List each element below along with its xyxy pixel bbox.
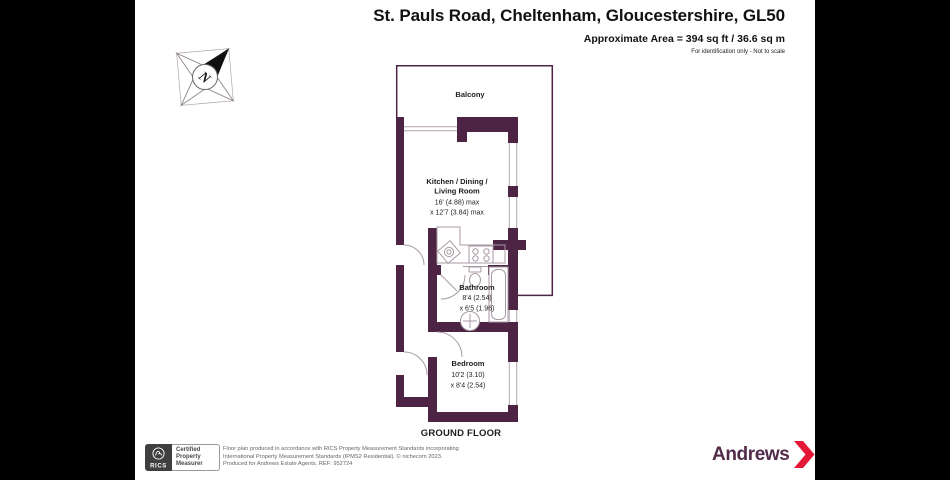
rics-cert-line3: Measurer [176, 461, 219, 468]
bathtub-icon [489, 267, 508, 322]
disclaimer-line1: Floor plan produced in accordance with R… [223, 446, 459, 454]
andrews-logo: Andrews [712, 441, 815, 468]
rics-cert-text: Certified Property Measurer [172, 444, 220, 471]
balcony-label: Balcony [455, 90, 485, 99]
kitchen-name-line1: Kitchen / Dining / [426, 177, 488, 186]
bathroom-door-leaf [441, 275, 457, 291]
identification-note: For identification only - Not to scale [373, 49, 785, 55]
bathroom-dim-line1: 8'4 (2.54) [462, 295, 491, 302]
bathroom-dim-line2: x 6'5 (1.96) [460, 306, 495, 313]
stove-icon [469, 246, 493, 263]
bedroom-door-arc [437, 332, 462, 357]
kitchen-sink-icon [438, 241, 461, 264]
bathroom-name: Bathroom [459, 283, 495, 292]
bath-sink-icon [461, 312, 480, 331]
rics-logo: RICS [145, 444, 172, 471]
kitchen-name-line2: Living Room [434, 187, 480, 196]
kitchen-dim-line2: x 12'7 (3.84) max [430, 210, 484, 217]
property-address: St. Pauls Road, Cheltenham, Gloucestersh… [373, 6, 785, 26]
disclaimer: Floor plan produced in accordance with R… [223, 446, 459, 469]
andrews-chevron-icon [794, 441, 815, 468]
bedroom-dim-line1: 10'2 (3.10) [451, 372, 484, 379]
andrews-wordmark: Andrews [712, 444, 789, 466]
rics-cert-line2: Property [176, 454, 219, 461]
approximate-area: Approximate Area = 394 sq ft / 36.6 sq m [373, 33, 785, 45]
floor-label: GROUND FLOOR [421, 428, 502, 439]
entrance-door-arc [404, 245, 424, 265]
rics-cert-line1: Certified [176, 447, 219, 454]
rics-lion-icon: RICS [145, 444, 172, 471]
floorplan-sheet: St. Pauls Road, Cheltenham, Gloucestersh… [135, 0, 815, 480]
floorplan-drawing: Balcony Kitchen / Dining / Living Room 1… [390, 58, 568, 443]
letterbox-right [815, 0, 950, 480]
floorplan-page: St. Pauls Road, Cheltenham, Gloucestersh… [0, 0, 950, 480]
kitchen-fixtures [437, 227, 505, 263]
letterbox-left [0, 0, 135, 480]
disclaimer-line2: International Property Measurement Stand… [223, 454, 459, 462]
bedroom-dim-line2: x 8'4 (2.54) [451, 383, 486, 390]
kitchen-dim-line1: 16' (4.88) max [435, 200, 480, 207]
disclaimer-line3: Produced for Andrews Estate Agents. REF:… [223, 461, 459, 469]
header: St. Pauls Road, Cheltenham, Gloucestersh… [373, 6, 785, 55]
rics-certification-badge: RICS Certified Property Measurer [145, 444, 220, 471]
bedroom-name: Bedroom [452, 359, 485, 368]
hall-door-arc [404, 352, 427, 375]
rics-abbr: RICS [150, 464, 167, 470]
compass-north-icon: N [160, 30, 252, 126]
